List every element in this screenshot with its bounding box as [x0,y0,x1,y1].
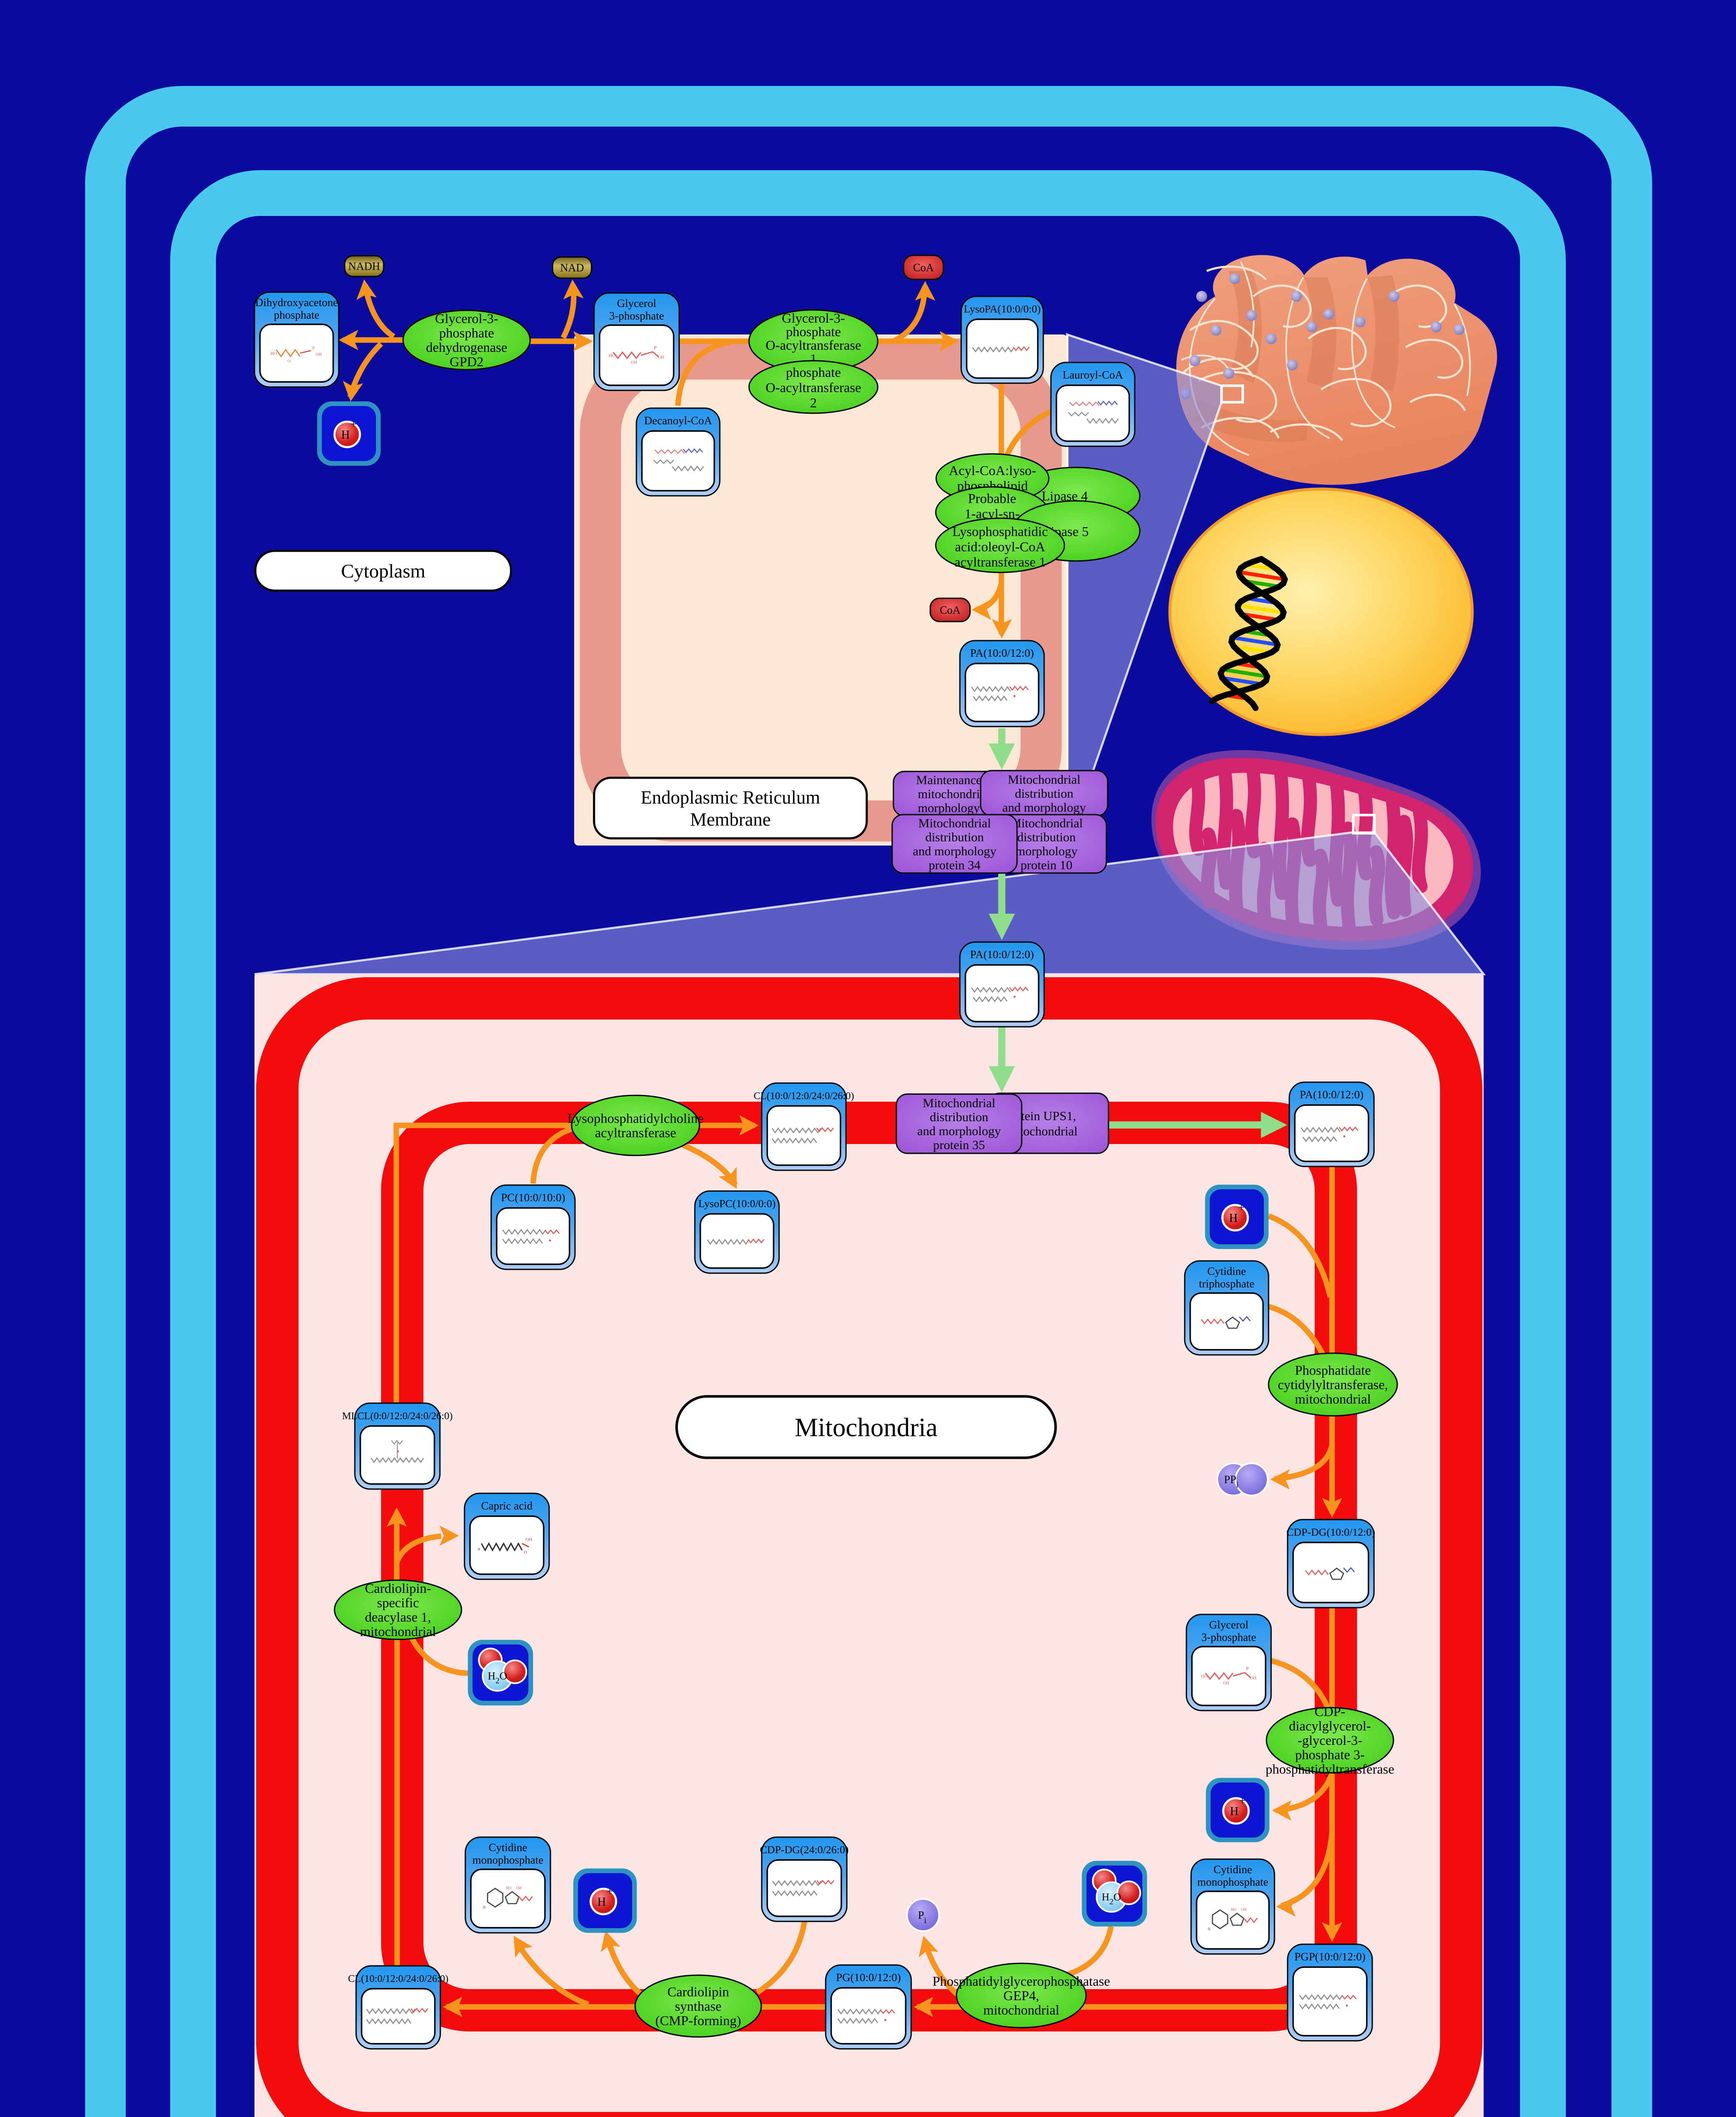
svg-text:phosphate: phosphate [786,324,841,339]
svg-text:PC(10:0/10:0): PC(10:0/10:0) [501,1191,565,1204]
svg-text:Cardiolipin: Cardiolipin [667,1984,729,1999]
svg-text:Phosphatidate: Phosphatidate [1295,1363,1371,1378]
svg-text:cytidylyltransferase,: cytidylyltransferase, [1278,1377,1388,1392]
svg-text:phosphatidyltransferase: phosphatidyltransferase [1266,1761,1394,1777]
svg-text:triphosphate: triphosphate [1199,1277,1255,1290]
svg-text:CDP-DG(24:0/26:0): CDP-DG(24:0/26:0) [760,1843,849,1856]
svg-text:phosphate 3-: phosphate 3- [1295,1747,1365,1762]
svg-text:OH: OH [631,360,637,365]
svg-text:HO: HO [271,351,277,356]
svg-text:Mitochondrial: Mitochondrial [1010,816,1083,830]
svg-text:OH: OH [1223,1681,1229,1686]
svg-text:phosphate: phosphate [786,365,841,380]
svg-text:Maintenance: Maintenance [916,773,982,787]
svg-text:+: + [607,1885,613,1897]
svg-text:+: + [1239,1794,1246,1807]
svg-text:monophosphate: monophosphate [1197,1876,1269,1888]
svg-text:LysoPA(10:0/0:0): LysoPA(10:0/0:0) [964,303,1041,315]
svg-text:distribution: distribution [925,830,984,844]
svg-text:H: H [1230,1805,1238,1818]
svg-text:OH: OH [658,355,664,360]
svg-text:protein 35: protein 35 [933,1138,985,1152]
svg-text:N: N [483,1905,486,1910]
svg-text:synthase: synthase [675,1998,721,2014]
svg-text:morphology: morphology [918,801,980,815]
svg-text:and morphology: and morphology [1002,801,1086,815]
svg-text:+: + [1238,1201,1245,1213]
svg-text:mitochondri: mitochondri [918,787,980,801]
svg-text:O: O [524,1550,527,1555]
svg-text:Lauroyl-CoA: Lauroyl-CoA [1063,368,1123,381]
svg-text:Cardiolipin-: Cardiolipin- [365,1581,431,1596]
svg-text:dehydrogenase: dehydrogenase [426,340,507,355]
svg-text:protein 34: protein 34 [929,858,980,872]
svg-text:-glycerol-3-: -glycerol-3- [1298,1733,1363,1748]
svg-text:Glycerol: Glycerol [1209,1618,1249,1631]
svg-text:Capric acid: Capric acid [481,1499,532,1512]
svg-text:protein 10: protein 10 [1020,858,1072,872]
svg-text:PA(10:0/12:0): PA(10:0/12:0) [1300,1088,1364,1101]
svg-text:P: P [312,345,315,351]
svg-text:Mitochondria: Mitochondria [795,1413,938,1442]
svg-text:CDP-DG(10:0/12:0): CDP-DG(10:0/12:0) [1286,1526,1375,1538]
svg-text:MLCL(0:0/12:0/24:0/26:0): MLCL(0:0/12:0/24:0/26:0) [342,1411,453,1422]
svg-text:O-acyltransferase: O-acyltransferase [766,337,861,353]
svg-text:acyltransferase: acyltransferase [595,1125,676,1140]
svg-text:PA(10:0/12:0): PA(10:0/12:0) [970,948,1034,961]
svg-text:HO: HO [609,353,616,358]
svg-text:H: H [478,1548,480,1551]
svg-text:P: P [654,345,657,351]
svg-text:distribution: distribution [1015,787,1073,801]
svg-text:Probable: Probable [968,491,1016,506]
svg-text:GPD2: GPD2 [450,354,484,369]
svg-text:CDP-: CDP- [1315,1704,1346,1719]
svg-text:Membrane: Membrane [690,809,771,830]
svg-text:Glycerol-3-: Glycerol-3- [435,311,498,326]
svg-text:O-acyltransferase: O-acyltransferase [766,380,861,395]
svg-text:tein UPS1,: tein UPS1, [1021,1109,1076,1123]
svg-text:N: N [1208,1927,1211,1931]
svg-text:HO: HO [1231,1907,1236,1912]
svg-text:NAD: NAD [560,262,584,274]
svg-text:monophosphate: monophosphate [473,1854,544,1866]
svg-text:diacylglycerol-: diacylglycerol- [1289,1718,1371,1733]
svg-text:Glycerol-3-: Glycerol-3- [782,310,845,326]
svg-text:Mitochondrial: Mitochondrial [923,1096,995,1110]
svg-text:H: H [597,1896,606,1909]
svg-text:Dihydroxyacetone: Dihydroxyacetone [255,296,338,309]
svg-text:2: 2 [810,395,817,410]
svg-text:Mitochondrial: Mitochondrial [918,816,991,830]
svg-text:O: O [287,359,290,364]
svg-text:PA(10:0/12:0): PA(10:0/12:0) [970,647,1034,659]
svg-text:OH: OH [1241,1907,1247,1912]
svg-text:Endoplasmic Reticulum: Endoplasmic Reticulum [641,787,820,808]
svg-text:HO: HO [506,1886,511,1890]
svg-text:Cytidine: Cytidine [1207,1265,1246,1277]
svg-text:CoA: CoA [940,604,960,616]
svg-text:Lysophosphatidic: Lysophosphatidic [952,524,1048,539]
svg-text:tochondrial: tochondrial [1020,1125,1078,1139]
svg-text:3-phosphate: 3-phosphate [609,310,664,322]
svg-text:PG(10:0/12:0): PG(10:0/12:0) [836,1971,901,1984]
svg-text:mitochondrial: mitochondrial [360,1624,436,1639]
svg-text:deacylase 1,: deacylase 1, [365,1609,431,1625]
svg-text:Cytidine: Cytidine [1214,1863,1252,1876]
svg-text:Glycerol: Glycerol [617,297,656,310]
svg-text:NADH: NADH [348,260,380,273]
svg-text:Decanoyl-CoA: Decanoyl-CoA [644,414,712,427]
svg-text:3-phosphate: 3-phosphate [1201,1631,1256,1644]
svg-text:GEP4,: GEP4, [1003,1988,1039,2003]
svg-text:Cytidine: Cytidine [489,1841,527,1854]
svg-text:Lysophosphatidylcholine: Lysophosphatidylcholine [567,1111,704,1126]
svg-text:distribution: distribution [1017,830,1075,844]
svg-text:Mitochondrial: Mitochondrial [1008,773,1081,787]
svg-text:OH: OH [525,1537,532,1542]
svg-text:and morphology: and morphology [913,844,996,858]
svg-text:HO: HO [1201,1674,1208,1679]
svg-text:CL(10:0/12:0/24:0/26:0): CL(10:0/12:0/24:0/26:0) [348,1973,448,1984]
svg-text:Acyl-CoA:lyso-: Acyl-CoA:lyso- [949,463,1036,478]
svg-text:acyltransferase 1: acyltransferase 1 [954,554,1046,569]
svg-text:specific: specific [377,1595,419,1610]
svg-text:CL(10:0/12:0/24:0/26:0): CL(10:0/12:0/24:0/26:0) [754,1091,854,1102]
svg-text:+: + [351,418,357,430]
svg-text:distribution: distribution [930,1110,988,1124]
svg-text:mitochondrial: mitochondrial [983,2002,1059,2018]
svg-text:H: H [341,428,350,442]
svg-text:CoA: CoA [913,262,934,274]
svg-text:H: H [1229,1212,1238,1225]
svg-text:and morphology: and morphology [917,1124,1001,1138]
svg-text:Cytoplasm: Cytoplasm [341,560,426,582]
svg-text:phosphate: phosphate [439,325,494,340]
svg-text:PGP(10:0/12:0): PGP(10:0/12:0) [1294,1950,1366,1963]
svg-text:P: P [1246,1666,1249,1672]
svg-text:mitochondrial: mitochondrial [1295,1391,1371,1407]
svg-text:OH: OH [315,352,321,357]
svg-text:OH: OH [516,1886,522,1890]
svg-text:(CMP-forming): (CMP-forming) [655,2013,741,2028]
svg-text:LysoPC(10:0/0:0): LysoPC(10:0/0:0) [698,1197,776,1210]
svg-text:Phosphatidylglycerophosphatase: Phosphatidylglycerophosphatase [932,1973,1110,1989]
svg-text:acid:oleoyl-CoA: acid:oleoyl-CoA [955,539,1045,554]
svg-text:morphology: morphology [1015,844,1078,858]
svg-text:phosphate: phosphate [274,309,319,321]
svg-text:OH: OH [1250,1676,1256,1681]
